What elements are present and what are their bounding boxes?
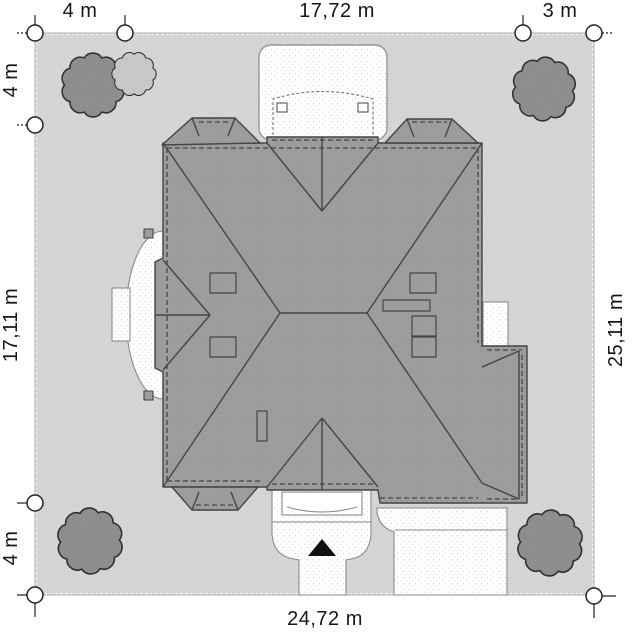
dimension-marker — [586, 588, 602, 604]
entrance-steps — [282, 492, 362, 515]
dimension-label-top-left: 4 m — [50, 1, 110, 21]
dimension-label-bottom: 24,72 m — [275, 609, 375, 629]
dimension-marker — [586, 25, 602, 41]
rear-patio — [377, 508, 507, 595]
site-plan: 4 m 17,72 m 3 m 4 m 17,11 m 4 m 25,11 m … — [0, 0, 634, 636]
roof-main — [155, 137, 527, 503]
dimension-marker — [27, 587, 43, 603]
dimension-label-right: 25,11 m — [606, 280, 626, 380]
dimension-marker — [27, 117, 43, 133]
dimension-label-left-top: 4 m — [1, 50, 21, 110]
chimney — [210, 273, 236, 293]
dimension-marker — [117, 25, 133, 41]
dimension-label-left-middle: 17,11 m — [1, 275, 21, 375]
right-window-bay — [483, 302, 508, 346]
driveway-pad — [259, 45, 387, 140]
site-plan-drawing — [0, 0, 634, 636]
chimney — [410, 273, 436, 293]
terrace-step — [112, 288, 130, 341]
terrace-post — [144, 391, 153, 400]
dimension-marker — [515, 25, 531, 41]
dimension-marker — [27, 25, 43, 41]
terrace-post — [144, 229, 153, 238]
carport-post — [358, 103, 368, 112]
dimension-label-top-center: 17,72 m — [287, 1, 387, 21]
house-roof — [144, 118, 527, 510]
roof-vent — [257, 411, 267, 441]
dimension-label-top-right: 3 m — [530, 1, 590, 21]
carport-post — [277, 103, 287, 112]
dimension-label-left-bottom: 4 m — [1, 518, 21, 578]
dimension-marker — [27, 495, 43, 511]
roof-vent — [383, 300, 430, 311]
chimney — [412, 316, 436, 336]
chimney — [210, 337, 236, 357]
chimney — [412, 337, 436, 357]
